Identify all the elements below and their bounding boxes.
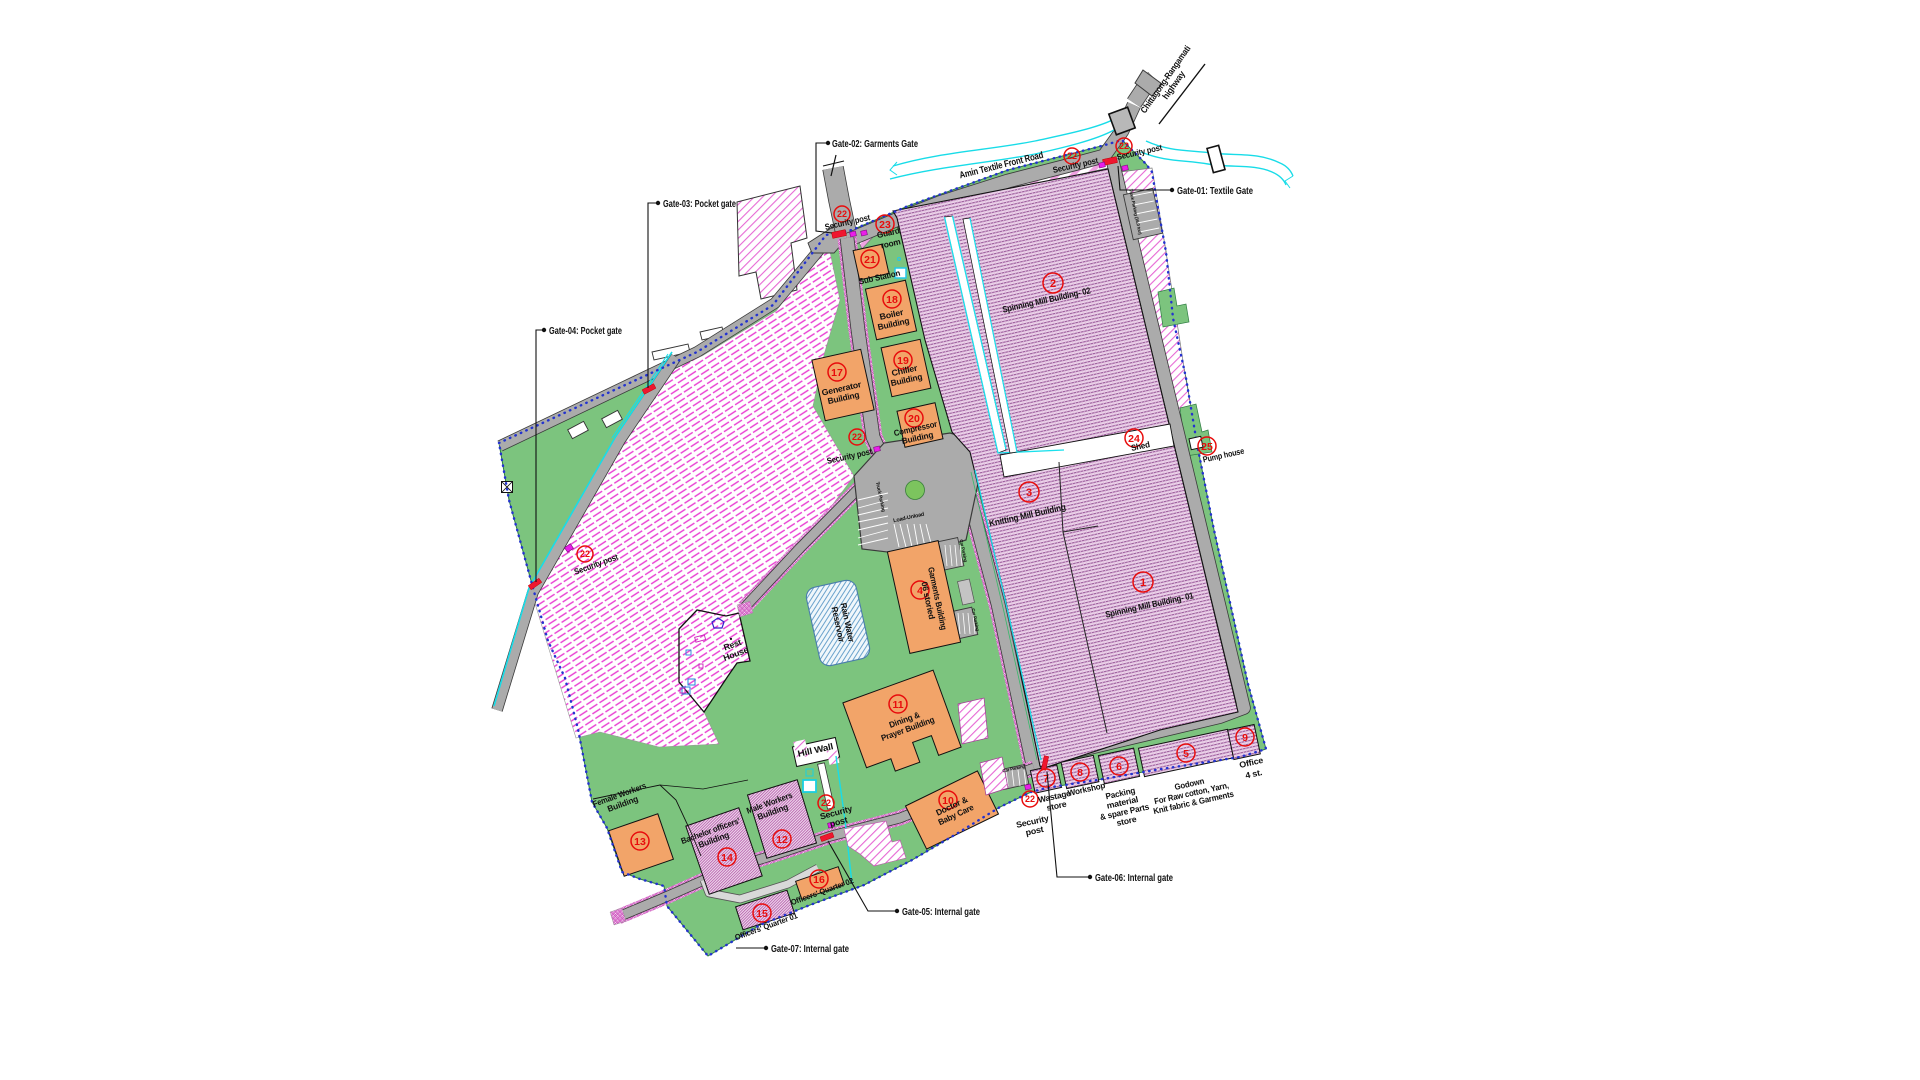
- svg-text:Gate-02: Garments Gate: Gate-02: Garments Gate: [832, 139, 918, 150]
- svg-text:14: 14: [721, 852, 733, 864]
- svg-text:21: 21: [864, 254, 876, 266]
- svg-text:22: 22: [821, 798, 831, 808]
- svg-text:6: 6: [1116, 761, 1122, 773]
- svg-text:17: 17: [831, 367, 843, 379]
- svg-text:Gate-06: Internal gate: Gate-06: Internal gate: [1095, 873, 1173, 884]
- svg-text:18: 18: [886, 294, 898, 306]
- svg-text:5: 5: [1183, 748, 1189, 760]
- svg-text:3: 3: [1026, 487, 1032, 499]
- svg-text:25: 25: [1201, 441, 1213, 453]
- svg-text:15: 15: [756, 908, 768, 920]
- svg-text:Gate-07: Internal gate: Gate-07: Internal gate: [771, 944, 849, 955]
- svg-text:22: 22: [852, 432, 862, 442]
- svg-text:13: 13: [634, 836, 646, 848]
- svg-text:12: 12: [776, 834, 788, 846]
- svg-text:9: 9: [1242, 732, 1248, 744]
- svg-text:22: 22: [580, 549, 590, 559]
- svg-text:1: 1: [1140, 577, 1146, 589]
- svg-text:11: 11: [892, 699, 903, 711]
- svg-text:Gate-01: Textile Gate: Gate-01: Textile Gate: [1177, 186, 1253, 197]
- svg-text:16: 16: [813, 874, 825, 886]
- svg-text:2: 2: [1050, 278, 1056, 290]
- svg-text:Gate-03: Pocket gate: Gate-03: Pocket gate: [663, 199, 736, 210]
- svg-text:22: 22: [1025, 794, 1035, 804]
- svg-text:8: 8: [1077, 767, 1083, 779]
- svg-text:Gate-04: Pocket gate: Gate-04: Pocket gate: [549, 326, 622, 337]
- svg-text:Gate-05: Internal gate: Gate-05: Internal gate: [902, 907, 980, 918]
